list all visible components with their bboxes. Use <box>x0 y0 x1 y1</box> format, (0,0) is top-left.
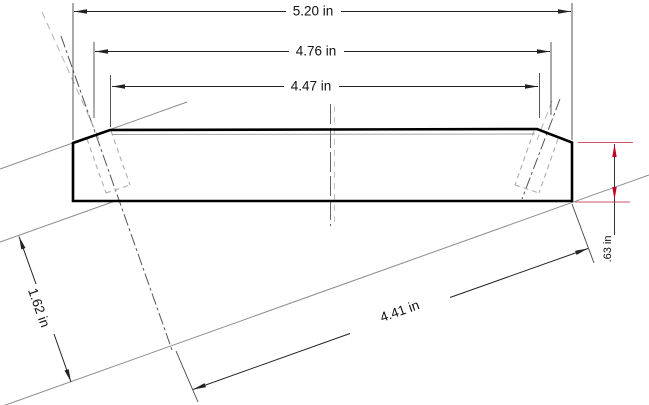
upper-tilted-reference-line <box>0 200 118 242</box>
dimension-line <box>193 334 350 390</box>
extension-line-left <box>176 351 198 402</box>
dimension-tilted-length: 4.41 in <box>176 204 594 402</box>
dimension-label-tilted-length: 4.41 in <box>378 297 421 325</box>
dimension-edge-thickness: .63 in <box>575 143 633 263</box>
dimension-label-overall-width: 5.20 in <box>293 4 334 19</box>
arrowhead-right <box>537 49 550 53</box>
dimension-perpendicular-offset: 1.62 in <box>19 237 71 383</box>
left-hidden-hole <box>87 131 130 193</box>
arrowhead-left <box>193 383 206 389</box>
extension-line-right <box>572 204 594 263</box>
part-outline <box>73 129 572 201</box>
arrowhead-left <box>74 9 87 13</box>
arrowhead-down <box>612 187 616 200</box>
left-hole-wall-inner <box>111 131 130 185</box>
dimension-overall-width: 5.20 in <box>73 3 572 140</box>
arrowhead-left <box>95 49 108 53</box>
left-hole-centerline <box>61 36 172 350</box>
top-face-secondary-edge <box>112 134 535 135</box>
left-hole-wall-outer <box>87 139 106 193</box>
dimension-label-edge-thickness: .63 in <box>602 236 614 263</box>
dimension-label-perpendicular-offset: 1.62 in <box>25 286 53 329</box>
arrowhead-up <box>612 144 616 157</box>
dimension-label-bevel-width: 4.76 in <box>296 44 337 59</box>
drawing-canvas: 5.20 in 4.76 in 4.47 in 1.62 in 4. <box>0 0 649 405</box>
arrowhead-right <box>558 9 571 13</box>
dimension-line <box>450 249 588 298</box>
arrowhead-right <box>575 249 588 255</box>
arrowhead-top <box>19 237 26 250</box>
construction-lines <box>0 102 649 405</box>
dimension-flat-width: 4.47 in <box>111 73 540 127</box>
dimension-label-flat-width: 4.47 in <box>291 79 332 94</box>
right-hole-wall-inner <box>515 131 534 185</box>
arrowhead-bottom <box>65 369 72 382</box>
technical-drawing: 5.20 in 4.76 in 4.47 in 1.62 in 4. <box>0 0 649 405</box>
part <box>73 129 572 201</box>
arrowhead-left <box>112 84 125 88</box>
lower-tilted-reference-line <box>0 175 649 405</box>
arrowhead-right <box>525 84 538 88</box>
left-hole-bottom <box>106 185 130 193</box>
left-hole-construction-dashed <box>42 12 100 141</box>
